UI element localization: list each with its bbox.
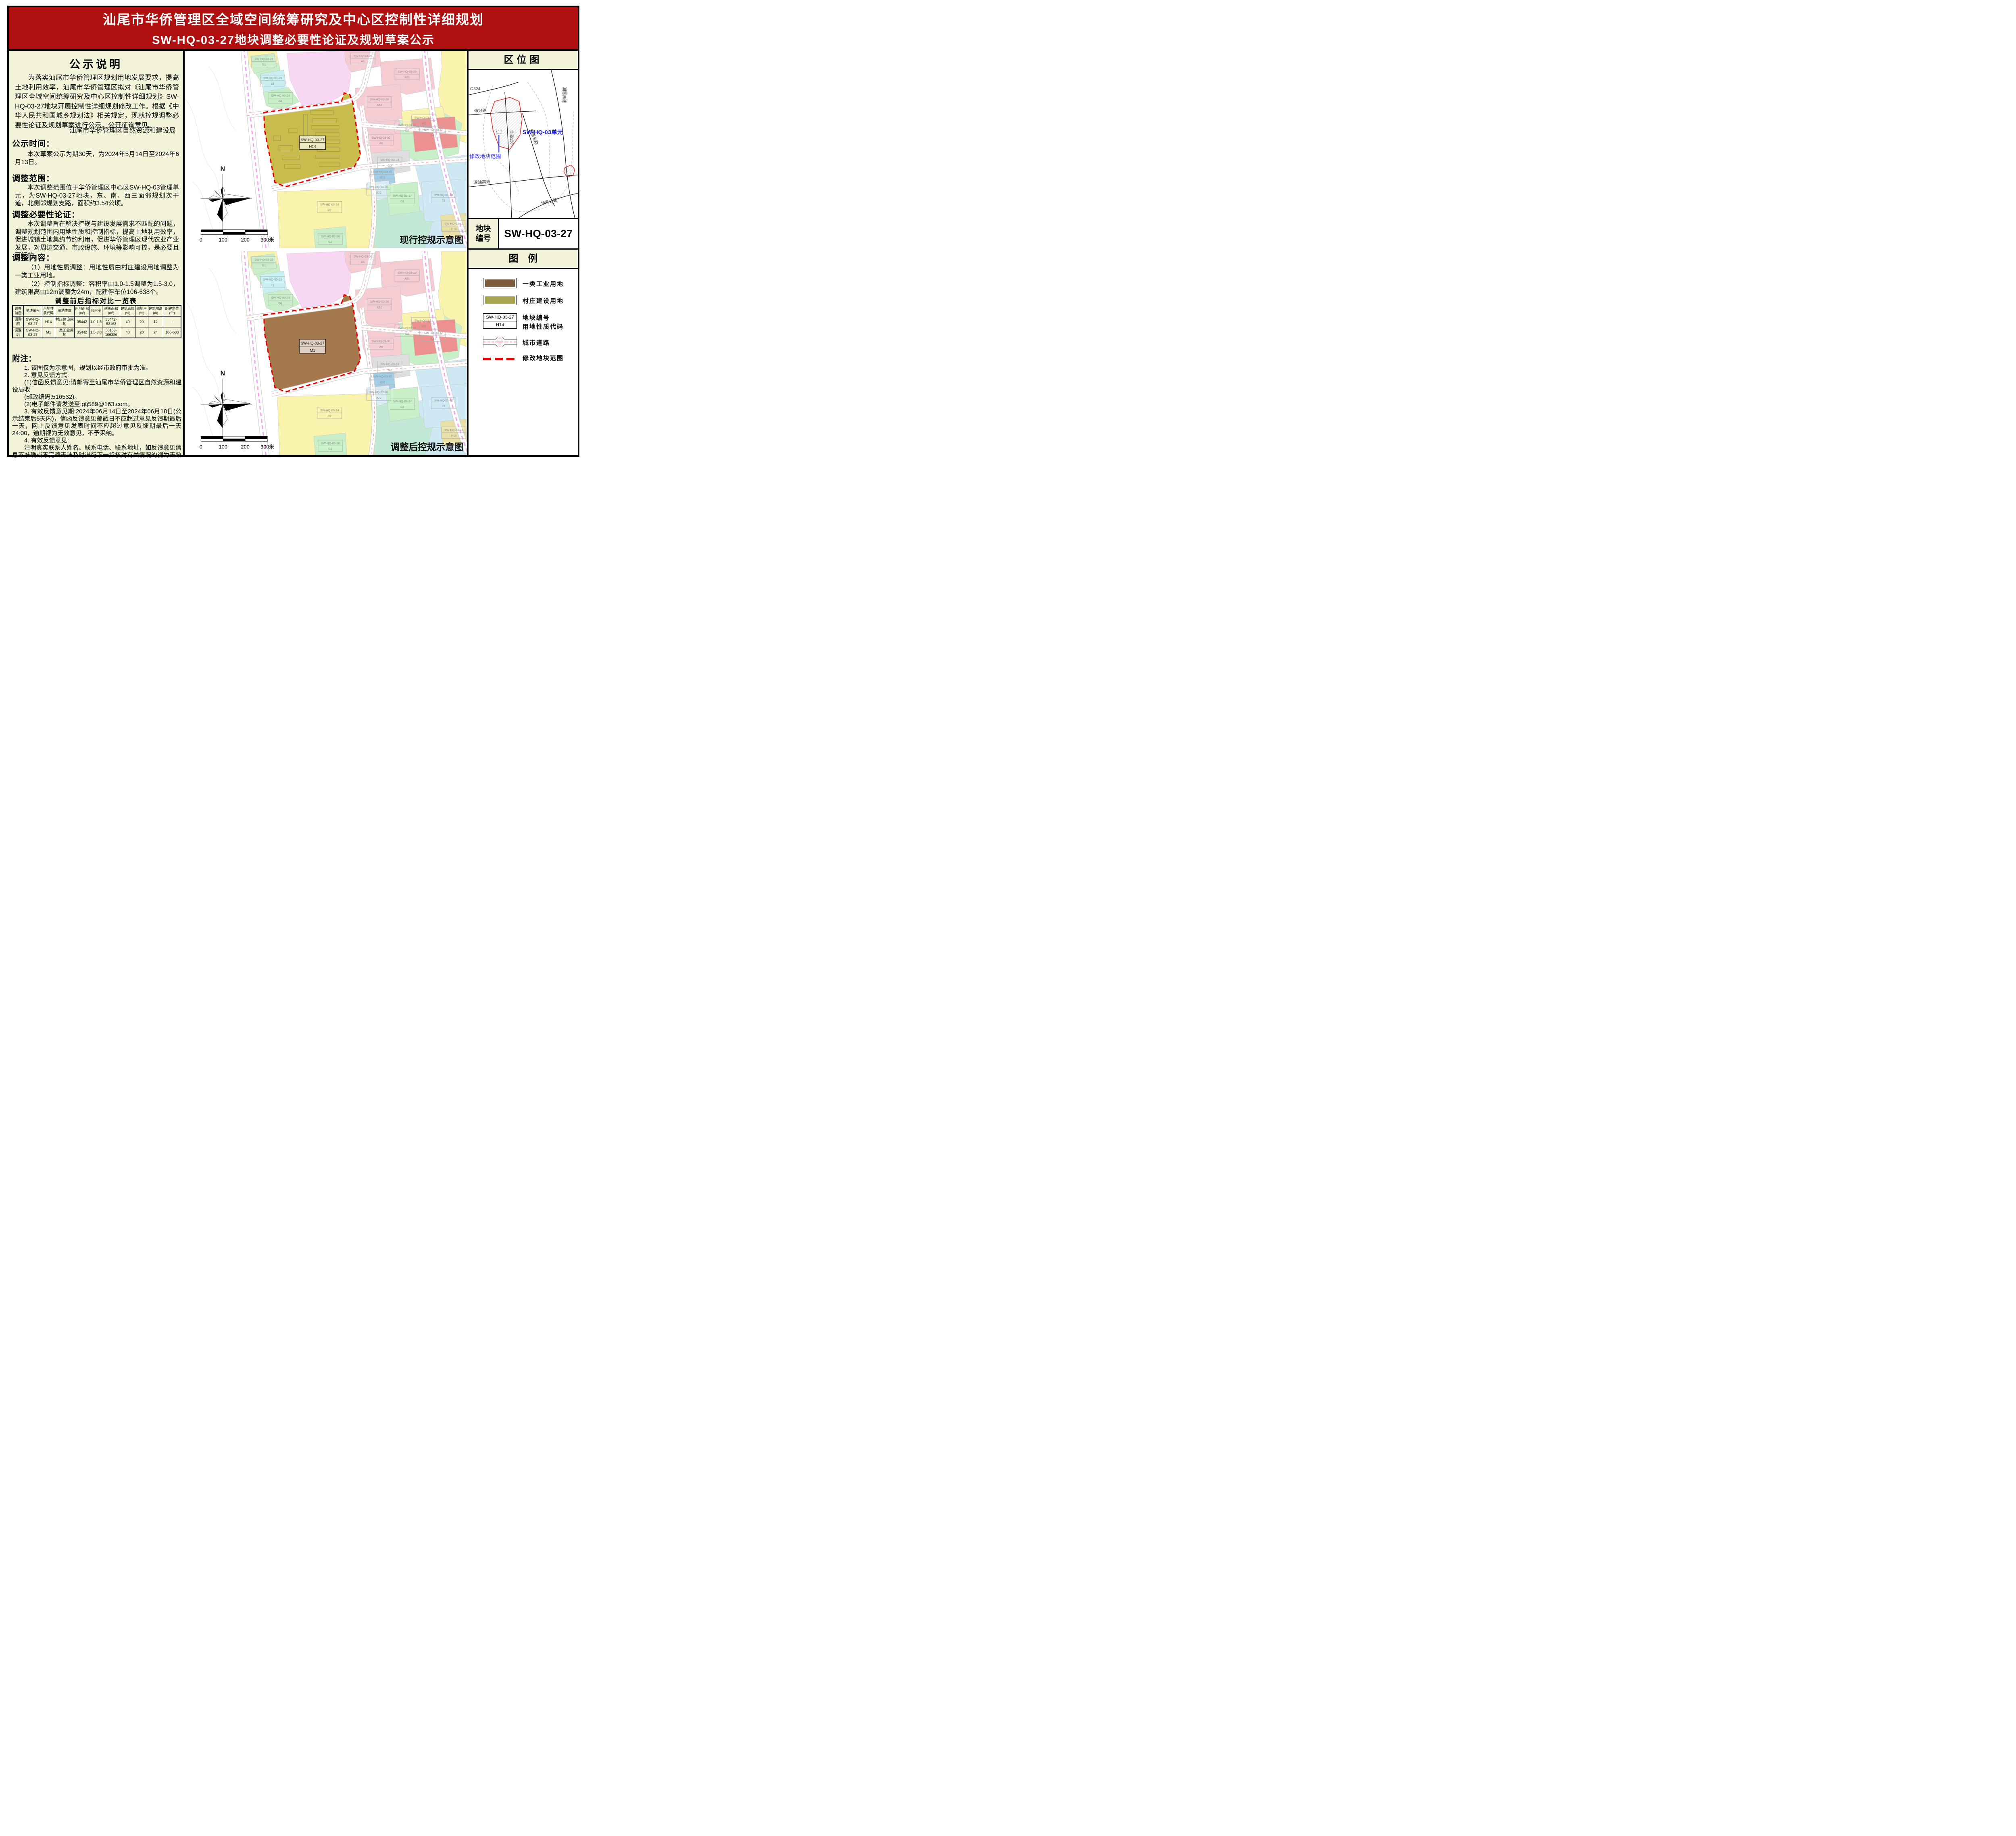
- svg-text:M1: M1: [310, 348, 315, 353]
- note-line: (邮政编码:516532)。: [12, 394, 181, 401]
- table-cell: 1.0-1.5: [90, 316, 102, 327]
- svg-text:H14: H14: [451, 434, 456, 438]
- svg-text:200: 200: [241, 444, 250, 450]
- svg-text:E1: E1: [271, 283, 274, 287]
- block-number-row: 地块编号 SW-HQ-03-27: [469, 219, 578, 250]
- table-cell: 106-638: [163, 327, 181, 338]
- svg-text:SW-HQ-03-35: SW-HQ-03-35: [373, 375, 392, 378]
- svg-text:A6: A6: [361, 60, 364, 63]
- adjust-content-line: （2）控制指标调整：容积率由1.0-1.5调整为1.5-3.0，建筑限高由12m…: [15, 280, 179, 296]
- svg-text:SW-HQ-03-38: SW-HQ-03-38: [321, 441, 339, 445]
- svg-text:300米: 300米: [260, 444, 274, 450]
- svg-text:G1: G1: [328, 447, 332, 451]
- table-cell: SW-HQ-03-27: [23, 327, 42, 338]
- svg-text:N: N: [221, 370, 225, 377]
- legend-label-code: 地块编号: [523, 313, 550, 322]
- svg-text:SW-HQ-03-31: SW-HQ-03-31: [398, 326, 417, 330]
- adjusted-plan-map: SW-HQ-03-22G1SW-HQ-03-23E1SW-HQ-03-24G1S…: [185, 251, 467, 455]
- industrial-swatch: [483, 278, 517, 288]
- svg-text:SW-HQ-03-32: SW-HQ-03-32: [424, 128, 442, 131]
- legend-code-box: SW-HQ-03-27H14: [483, 313, 517, 329]
- note-line: 2. 意见反馈方式:: [12, 372, 181, 379]
- table-cell: SW-HQ-03-27: [23, 316, 42, 327]
- svg-text:0: 0: [200, 237, 202, 243]
- road-icon: [483, 337, 517, 347]
- note-line: (1)信函反馈意见:请邮寄至汕尾市华侨管理区自然资源和建设局收: [12, 379, 181, 394]
- svg-text:SW-HQ-03-28: SW-HQ-03-28: [370, 98, 389, 101]
- note-line: (2)电子邮件请发送至:gtj589@163.com。: [12, 401, 181, 408]
- adjust-content-line: （1）用地性质调整：用地性质由村庄建设用地调整为一类工业用地。: [15, 264, 179, 279]
- svg-text:G1: G1: [262, 264, 266, 267]
- svg-text:SW-HQ-03-11: SW-HQ-03-11: [414, 319, 433, 322]
- table-header-cell: 建筑密度(%): [120, 305, 135, 316]
- central-parcel-label: SW-HQ-03-27M1: [300, 339, 326, 353]
- svg-text:R2: R2: [422, 325, 425, 328]
- section-heading-scope: 调整范围：: [12, 172, 54, 183]
- svg-text:SW-HQ-03-36: SW-HQ-03-36: [369, 185, 388, 189]
- table-cell: 12: [148, 316, 163, 327]
- section-heading-content: 调整内容：: [12, 251, 54, 263]
- svg-text:G3: G3: [388, 164, 392, 167]
- svg-text:A52: A52: [377, 103, 382, 107]
- svg-text:SW-HQ-03-27: SW-HQ-03-27: [301, 341, 325, 346]
- table-cell: 一类工业用地: [55, 327, 74, 338]
- svg-text:SW-HQ-03-23: SW-HQ-03-23: [263, 76, 282, 80]
- svg-text:U22: U22: [376, 396, 381, 400]
- svg-text:N: N: [221, 166, 225, 173]
- section-heading-necessity: 调整必要性论证：: [12, 208, 80, 220]
- legend-label-industrial: 一类工业用地: [523, 279, 564, 288]
- svg-text:A51: A51: [404, 277, 410, 280]
- table-cell: 调整后: [12, 327, 23, 338]
- svg-text:A52: A52: [377, 306, 382, 309]
- svg-text:SW-HQ-03-26: SW-HQ-03-26: [354, 254, 372, 258]
- svg-text:SW-HQ-03-36: SW-HQ-03-36: [369, 390, 388, 394]
- table-header-cell: 容积率: [90, 305, 102, 316]
- table-cell: 村庄建设用地: [55, 316, 74, 327]
- section-body-content: （1）用地性质调整：用地性质由村庄建设用地调整为一类工业用地。（2）控制指标调整…: [15, 264, 179, 297]
- svg-text:E1: E1: [442, 199, 446, 202]
- table-cell: 20: [135, 327, 148, 338]
- location-range-label: 修改地块范围: [469, 154, 501, 160]
- svg-text:SW-HQ-03-38: SW-HQ-03-38: [321, 234, 339, 238]
- table-header-cell: 配建车位(个): [163, 305, 181, 316]
- svg-text:SW-HQ-03-27: SW-HQ-03-27: [301, 138, 325, 142]
- svg-text:SW-HQ-03-33: SW-HQ-03-33: [380, 158, 399, 162]
- svg-text:SW-HQ-03-24: SW-HQ-03-24: [271, 296, 289, 299]
- svg-text:SW-HQ-03-29: SW-HQ-03-29: [398, 70, 417, 73]
- svg-text:SW-HQ-03-33: SW-HQ-03-33: [380, 362, 399, 366]
- location-map-title: 区位图: [469, 51, 578, 70]
- table-cell: H14: [42, 316, 55, 327]
- svg-text:U31: U31: [380, 175, 385, 179]
- legend-panel: 一类工业用地村庄建设用地SW-HQ-03-27H14地块编号用地性质代码城市道路…: [469, 269, 578, 455]
- svg-text:SW-HQ-03-31: SW-HQ-03-31: [398, 123, 417, 127]
- table-row: 调整前SW-HQ-03-27H14村庄建设用地354421.0-1.535442…: [12, 316, 181, 327]
- notes-list: 1. 该图仅为示意图，规划以经市政府审批为准。2. 意见反馈方式:(1)信函反馈…: [12, 365, 181, 459]
- side-panel: 区位图 G324潮惠高速华兴路县道138侨惠公路深汕高速华侨公路SW-HQ-03…: [469, 51, 578, 455]
- svg-text:G1: G1: [400, 405, 404, 409]
- section-body-scope: 本次调整范围位于华侨管理区中心区SW-HQ-03管理单元，为SW-HQ-03-2…: [15, 184, 179, 208]
- notes-title: 附注：: [12, 352, 36, 364]
- table-header-cell: 建筑面积(m²): [102, 305, 120, 316]
- svg-text:SW-HQ-03-37: SW-HQ-03-37: [393, 194, 412, 198]
- legend-code-box-use: H14: [483, 321, 516, 329]
- block-number-label: 地块编号: [469, 219, 499, 248]
- legend-label-road: 城市道路: [523, 338, 550, 347]
- svg-text:B41: B41: [431, 337, 436, 340]
- table-header-cell: 调整前后: [12, 305, 23, 316]
- comparison-table-title: 调整前后指标对比一览表: [9, 296, 183, 305]
- svg-text:H14: H14: [451, 227, 456, 231]
- svg-text:G2: G2: [405, 129, 409, 132]
- svg-text:SW-HQ-03-40: SW-HQ-03-40: [434, 398, 453, 402]
- location-map-svg: G324潮惠高速华兴路县道138侨惠公路深汕高速华侨公路SW-HQ-03单元修改…: [469, 70, 578, 218]
- table-cell: 35442: [74, 316, 90, 327]
- location-road-label: G324: [470, 87, 481, 92]
- table-header-row: 调整前后地块编号用地性质代码用地性质用地面积(m²)容积率建筑面积(m²)建筑密…: [12, 305, 181, 316]
- comparison-table: 调整前后地块编号用地性质代码用地性质用地面积(m²)容积率建筑面积(m²)建筑密…: [12, 305, 181, 338]
- table-cell: 53163-106326: [102, 327, 120, 338]
- table-row: 调整后SW-HQ-03-27M1一类工业用地354421.5-3.053163-…: [12, 327, 181, 338]
- notice-agency: 汕尾市华侨管理区自然资源和建设局: [69, 125, 176, 135]
- table-header-cell: 用地性质代码: [42, 305, 55, 316]
- svg-text:B41: B41: [431, 133, 436, 137]
- svg-text:G1: G1: [279, 301, 283, 305]
- svg-text:E1: E1: [271, 82, 274, 85]
- title-line-2: SW-HQ-03-27地块调整必要性论证及规划草案公示: [152, 31, 435, 48]
- map-divider-gap: [185, 248, 467, 251]
- svg-text:SW-HQ-03-26: SW-HQ-03-26: [354, 54, 372, 58]
- svg-text:SW-HQ-03-34: SW-HQ-03-34: [320, 202, 339, 206]
- notice-title: 公示说明: [9, 56, 183, 71]
- central-parcel-label: SW-HQ-03-27H14: [300, 136, 326, 150]
- svg-text:A51: A51: [404, 75, 410, 79]
- current-plan-svg: SW-HQ-03-22G1SW-HQ-03-23E1SW-HQ-03-24G1S…: [185, 51, 467, 248]
- block-number-value: SW-HQ-03-27: [499, 219, 578, 248]
- svg-text:100: 100: [219, 444, 227, 450]
- svg-text:SW-HQ-03-34: SW-HQ-03-34: [320, 408, 339, 412]
- svg-text:G3: G3: [388, 368, 392, 372]
- note-line: 1. 该图仅为示意图，规划以经市政府审批为准。: [12, 365, 181, 372]
- table-cell: M1: [42, 327, 55, 338]
- svg-text:U31: U31: [380, 380, 385, 384]
- svg-text:0: 0: [200, 444, 202, 450]
- table-cell: 调整前: [12, 316, 23, 327]
- table-header-cell: 建筑限高(m): [148, 305, 163, 316]
- table-cell: 24: [148, 327, 163, 338]
- location-unit-label: SW-HQ-03单元: [523, 129, 563, 136]
- svg-text:H14: H14: [309, 145, 316, 149]
- table-cell: 35442-53163: [102, 316, 120, 327]
- svg-text:U22: U22: [376, 191, 381, 194]
- svg-text:A6: A6: [379, 345, 383, 349]
- table-header-cell: 地块编号: [23, 305, 42, 316]
- svg-text:200: 200: [241, 237, 250, 243]
- svg-text:SW-HQ-03-22: SW-HQ-03-22: [254, 57, 273, 61]
- block-number-label-text: 地块编号: [475, 224, 491, 244]
- content-area: 公示说明 为落实汕尾市华侨管理区规划用地发展要求，提高土地利用效率，汕尾市华侨管…: [9, 49, 578, 455]
- table-cell: 35442: [74, 327, 90, 338]
- current-plan-map: SW-HQ-03-22G1SW-HQ-03-23E1SW-HQ-03-24G1S…: [185, 51, 467, 248]
- legend-label-usecode: 用地性质代码: [523, 322, 564, 331]
- table-cell: --: [163, 316, 181, 327]
- svg-text:SW-HQ-03-32: SW-HQ-03-32: [424, 331, 442, 335]
- legend-label-range: 修改地块范围: [523, 354, 564, 362]
- table-cell: 1.5-3.0: [90, 327, 102, 338]
- note-line: 3. 有效反馈意见期:2024年06月14日至2024年06月18日(公示结束后…: [12, 408, 181, 437]
- svg-text:SW-HQ-03-30: SW-HQ-03-30: [372, 136, 390, 140]
- svg-text:SW-HQ-03-37: SW-HQ-03-37: [393, 399, 412, 403]
- svg-text:SW-HQ-03-42: SW-HQ-03-42: [444, 428, 463, 432]
- svg-text:R2: R2: [328, 208, 331, 212]
- section-heading-time: 公示时间：: [12, 137, 54, 149]
- map-caption: 调整后控规示意图: [391, 442, 464, 452]
- svg-text:A6: A6: [361, 260, 364, 264]
- svg-text:G1: G1: [262, 63, 266, 66]
- table-cell: 40: [120, 327, 135, 338]
- map-caption: 现行控规示意图: [400, 235, 463, 245]
- svg-text:R2: R2: [328, 414, 331, 418]
- svg-text:SW-HQ-03-23: SW-HQ-03-23: [263, 277, 282, 281]
- svg-text:E1: E1: [442, 404, 446, 408]
- svg-text:SW-HQ-03-40: SW-HQ-03-40: [434, 193, 453, 197]
- adjusted-plan-svg: SW-HQ-03-22G1SW-HQ-03-23E1SW-HQ-03-24G1S…: [185, 251, 467, 455]
- svg-text:SW-HQ-03-24: SW-HQ-03-24: [271, 94, 289, 97]
- poster-frame: 汕尾市华侨管理区全域空间统筹研究及中心区控制性详细规划 SW-HQ-03-27地…: [7, 6, 579, 457]
- svg-text:R2: R2: [422, 121, 425, 125]
- village-swatch: [483, 295, 517, 305]
- svg-text:SW-HQ-03-35: SW-HQ-03-35: [373, 170, 392, 174]
- svg-text:SW-HQ-03-42: SW-HQ-03-42: [444, 222, 463, 225]
- legend-label-village: 村庄建设用地: [523, 296, 564, 305]
- note-line: 注明真实联系人姓名、联系电话、联系地址，如反馈意见信息不准确或不完整无法及时进行…: [12, 444, 181, 459]
- svg-text:A6: A6: [379, 142, 383, 145]
- svg-text:SW-HQ-03-22: SW-HQ-03-22: [254, 258, 273, 261]
- legend-code-box-code: SW-HQ-03-27: [483, 314, 516, 321]
- range-dash-icon: [483, 355, 517, 358]
- legend-title: 图 例: [469, 250, 578, 269]
- svg-text:SW-HQ-03-30: SW-HQ-03-30: [372, 339, 390, 343]
- table-header-cell: 用地性质: [55, 305, 74, 316]
- title-banner: 汕尾市华侨管理区全域空间统筹研究及中心区控制性详细规划 SW-HQ-03-27地…: [9, 7, 578, 49]
- table-header-cell: 绿地率(%): [135, 305, 148, 316]
- svg-text:300米: 300米: [260, 237, 274, 243]
- table-header-cell: 用地面积(m²): [74, 305, 90, 316]
- svg-text:SW-HQ-03-11: SW-HQ-03-11: [414, 116, 433, 120]
- svg-text:SW-HQ-03-28: SW-HQ-03-28: [370, 300, 389, 303]
- svg-text:G2: G2: [405, 332, 409, 336]
- svg-text:SW-HQ-03-29: SW-HQ-03-29: [398, 271, 417, 275]
- zoning-maps-column: SW-HQ-03-22G1SW-HQ-03-23E1SW-HQ-03-24G1S…: [185, 51, 469, 455]
- title-line-1: 汕尾市华侨管理区全域空间统筹研究及中心区控制性详细规划: [103, 9, 484, 28]
- note-line: 4. 有效反馈意见:: [12, 437, 181, 444]
- svg-text:100: 100: [219, 237, 227, 243]
- location-map: G324潮惠高速华兴路县道138侨惠公路深汕高速华侨公路SW-HQ-03单元修改…: [469, 70, 578, 219]
- notice-intro: 为落实汕尾市华侨管理区规划用地发展要求，提高土地利用效率，汕尾市华侨管理区拟对《…: [15, 73, 179, 130]
- svg-text:G1: G1: [328, 240, 332, 244]
- svg-text:G1: G1: [400, 200, 404, 203]
- table-cell: 20: [135, 316, 148, 327]
- section-body-time: 本次草案公示为期30天，为2024年5月14日至2024年6月13日。: [15, 150, 179, 166]
- notice-text-column: 公示说明 为落实汕尾市华侨管理区规划用地发展要求，提高土地利用效率，汕尾市华侨管…: [9, 51, 185, 455]
- svg-text:G1: G1: [279, 99, 283, 103]
- table-cell: 40: [120, 316, 135, 327]
- planning-notice-poster: 汕尾市华侨管理区全域空间统筹研究及中心区控制性详细规划 SW-HQ-03-27地…: [0, 0, 587, 459]
